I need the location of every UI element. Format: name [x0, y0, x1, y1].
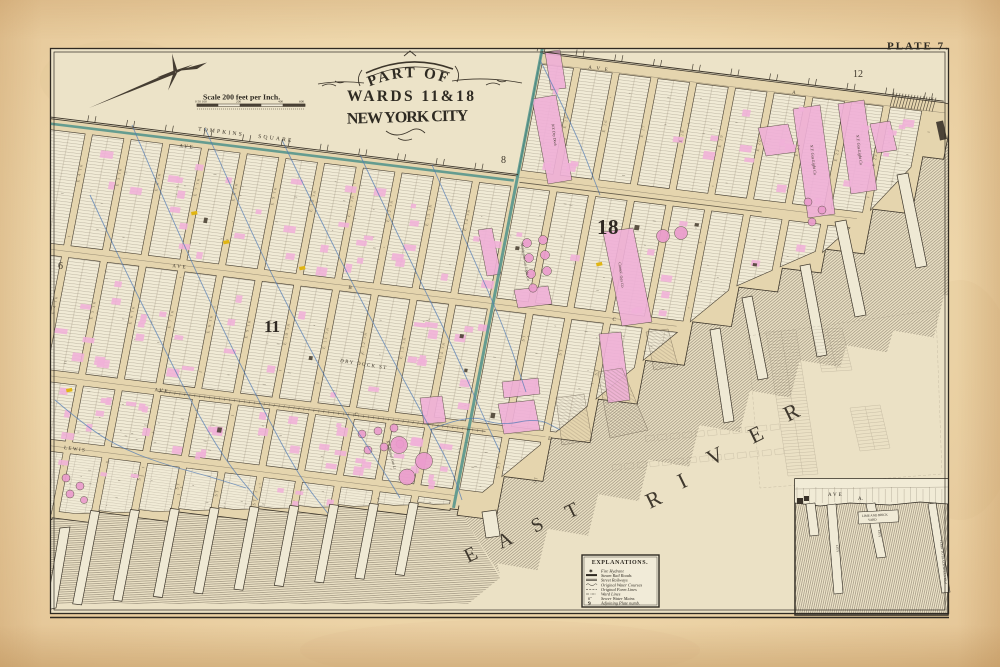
svg-text:Adjoining Plate numb.: Adjoining Plate numb.: [600, 601, 640, 606]
svg-text:EXPLANATIONS.: EXPLANATIONS.: [592, 560, 649, 566]
svg-text:NEW YORK CITY: NEW YORK CITY: [347, 107, 469, 127]
svg-text:CITY: CITY: [877, 530, 882, 539]
svg-text:8: 8: [501, 155, 506, 166]
svg-text:6: 6: [58, 261, 63, 272]
svg-text:18: 18: [597, 215, 619, 239]
svg-text:PLATE 7.: PLATE 7.: [887, 41, 950, 53]
svg-text:11: 11: [264, 317, 280, 336]
svg-text:✱: ✱: [589, 569, 593, 574]
svg-text:12: 12: [853, 69, 863, 80]
svg-text:D: D: [548, 437, 554, 443]
svg-text:A.: A.: [858, 497, 863, 502]
svg-text:200: 200: [236, 100, 241, 104]
svg-text:B: B: [348, 286, 354, 292]
svg-text:A: A: [792, 91, 798, 97]
svg-text:WARDS 11&18: WARDS 11&18: [347, 88, 475, 105]
svg-text:YARD: YARD: [868, 518, 878, 522]
svg-text:400: 400: [278, 100, 283, 104]
svg-text:CITY: CITY: [835, 545, 840, 554]
svg-text:AVE: AVE: [828, 493, 844, 498]
svg-text:Scale 200 feet per Inch.: Scale 200 feet per Inch.: [203, 93, 280, 102]
svg-text:0 50 100: 0 50 100: [195, 100, 207, 104]
svg-text:C: C: [354, 413, 360, 419]
svg-text:C: C: [612, 318, 618, 324]
svg-text:9: 9: [588, 601, 591, 607]
svg-text:600: 600: [299, 100, 304, 104]
